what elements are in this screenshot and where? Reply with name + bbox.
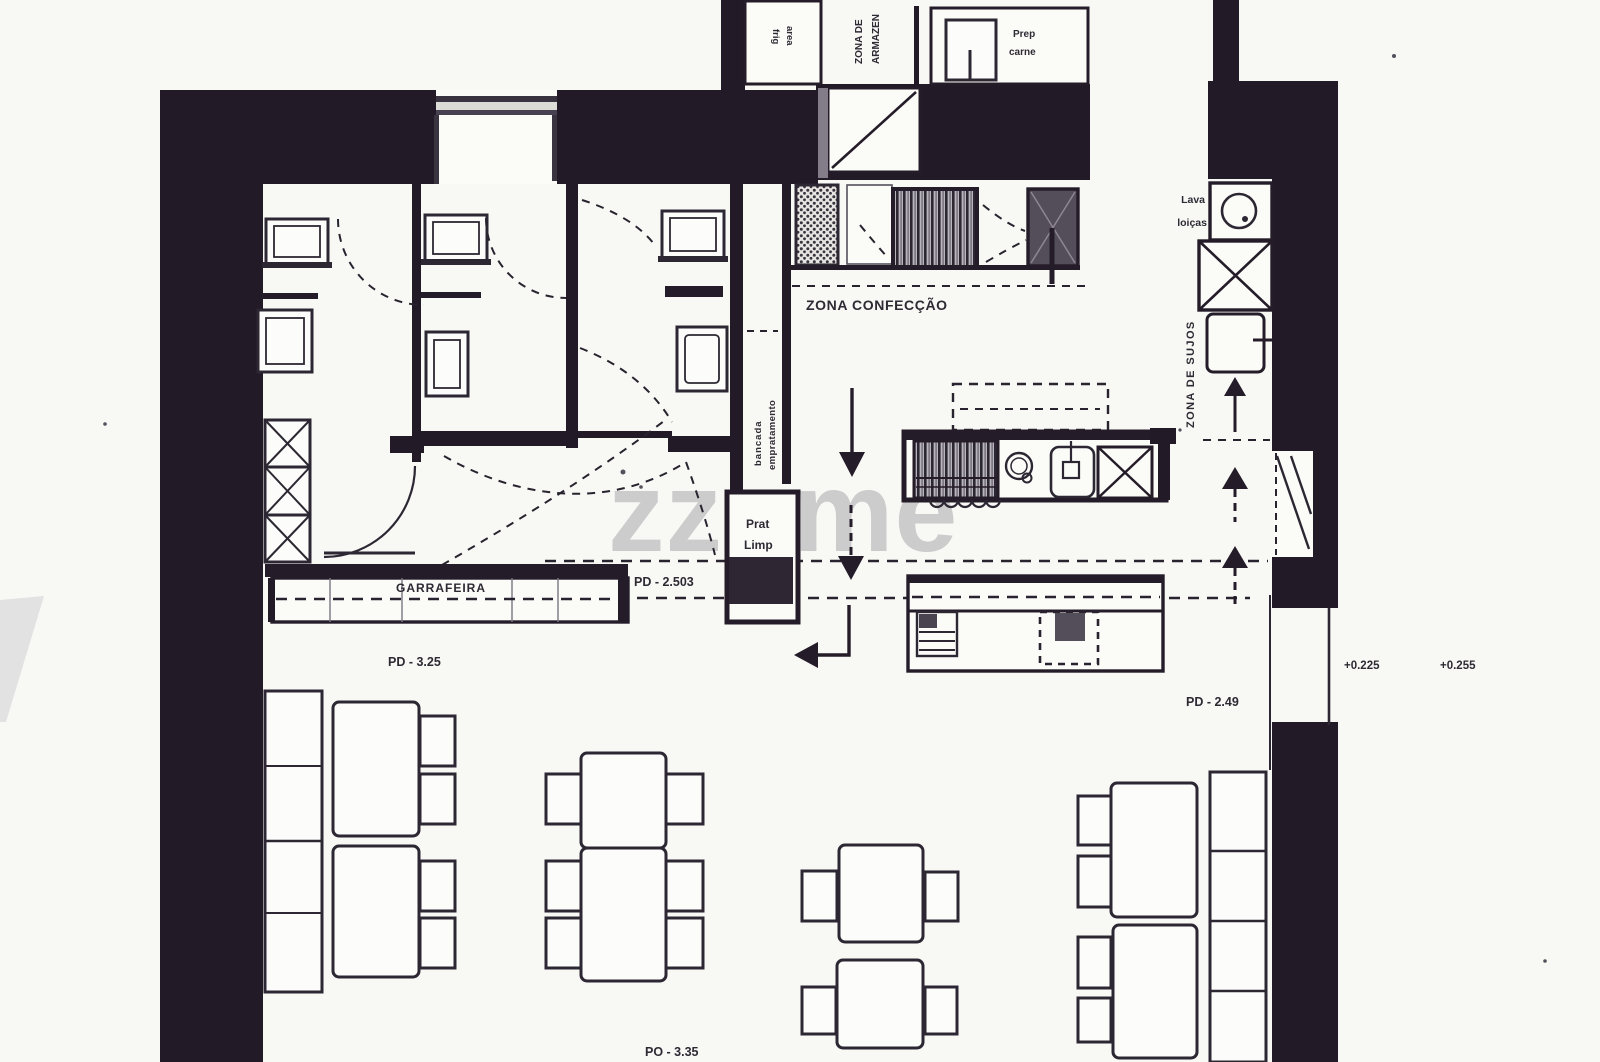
svg-text:PO - 3.35: PO - 3.35 [645, 1045, 699, 1059]
svg-text:+0.255: +0.255 [1440, 660, 1476, 672]
svg-text:bancada: bancada [753, 420, 764, 466]
svg-text:PD - 2.49: PD - 2.49 [1186, 695, 1239, 709]
svg-text:ARMAZEN: ARMAZEN [871, 14, 882, 64]
svg-text:PD - 3.25: PD - 3.25 [388, 655, 441, 669]
svg-text:ZONA CONFECÇÃO: ZONA CONFECÇÃO [806, 296, 948, 313]
svg-text:carne: carne [1009, 47, 1036, 58]
svg-text:area: area [784, 26, 795, 46]
svg-text:ZONA DE SUJOS: ZONA DE SUJOS [1185, 320, 1197, 428]
svg-text:ZONA DE: ZONA DE [854, 19, 865, 64]
svg-text:frig: frig [770, 29, 781, 45]
svg-text:+0.225: +0.225 [1344, 660, 1380, 672]
svg-text:Limp: Limp [744, 538, 773, 552]
svg-text:loiças: loiças [1177, 217, 1207, 229]
svg-text:Prep: Prep [1013, 29, 1035, 40]
svg-text:Lava: Lava [1181, 194, 1205, 206]
svg-text:Prat: Prat [746, 517, 769, 531]
svg-text:GARRAFEIRA: GARRAFEIRA [396, 581, 486, 595]
svg-text:empratamento: empratamento [767, 400, 778, 470]
svg-text:PD - 2.503: PD - 2.503 [634, 575, 694, 589]
